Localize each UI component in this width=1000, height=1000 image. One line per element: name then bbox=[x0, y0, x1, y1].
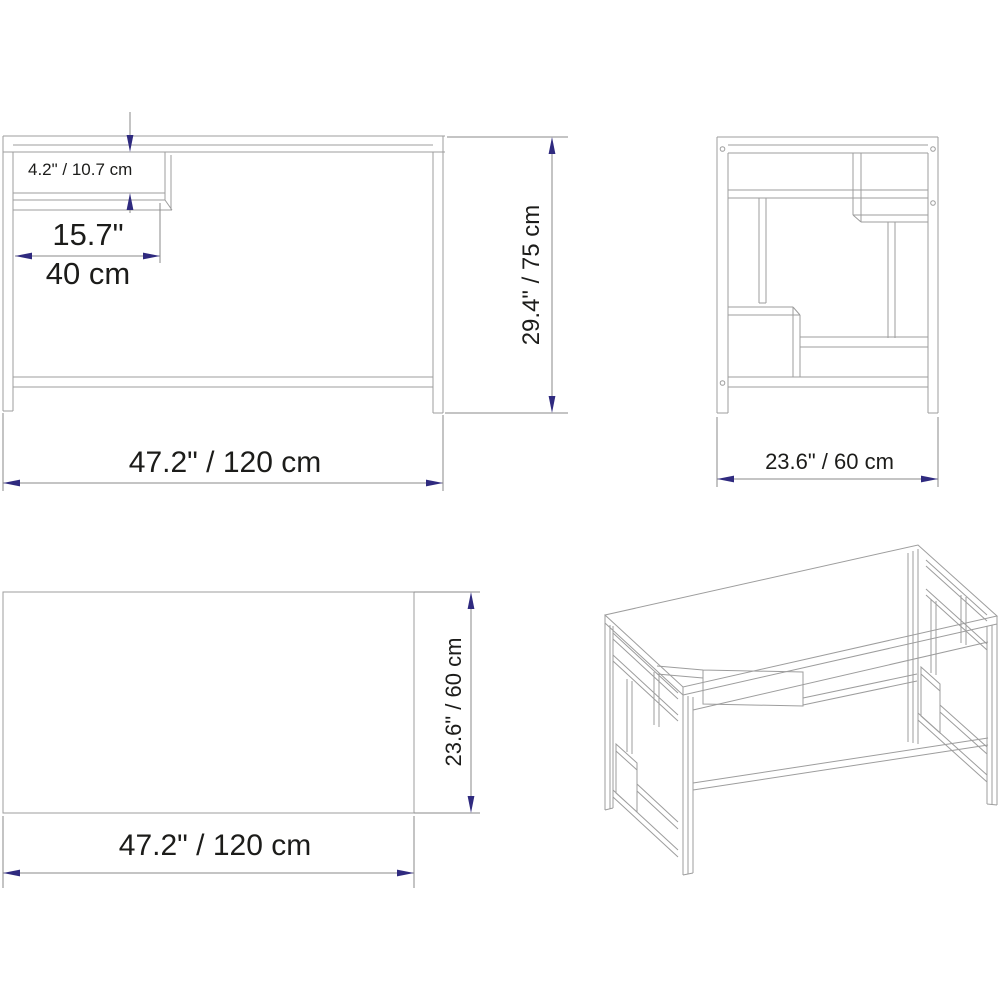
screw-hole-icon bbox=[720, 147, 725, 152]
front-shelf-width-inch-label: 15.7" bbox=[18, 217, 158, 253]
front-right-leg bbox=[433, 136, 443, 413]
side-right-leg bbox=[928, 137, 938, 413]
perspective-view bbox=[605, 545, 997, 875]
side-lower-bar bbox=[888, 222, 895, 338]
perspective-back-rail bbox=[803, 674, 917, 705]
arrow-right-icon bbox=[921, 476, 938, 483]
perspective-front-left-leg bbox=[683, 695, 693, 875]
perspective-back-left-leg bbox=[605, 623, 613, 810]
arrow-right-icon bbox=[426, 480, 443, 487]
screw-hole-icon bbox=[720, 381, 725, 386]
arrow-left-icon bbox=[3, 480, 20, 487]
arrow-down-icon bbox=[549, 396, 556, 413]
top-view-outline bbox=[3, 592, 414, 813]
side-mid-rail bbox=[800, 337, 928, 347]
front-shelf-width-cm-label: 40 cm bbox=[18, 256, 158, 292]
front-tabletop bbox=[3, 136, 445, 152]
side-bottom-rail bbox=[728, 377, 928, 387]
arrow-up-icon bbox=[468, 592, 475, 609]
side-view bbox=[717, 137, 938, 487]
perspective-front-right-leg bbox=[987, 624, 997, 805]
top-width-label: 47.2" / 120 cm bbox=[60, 829, 370, 864]
side-upper-bar bbox=[853, 153, 928, 222]
arrow-right-icon bbox=[397, 870, 414, 877]
side-depth-label: 23.6" / 60 cm bbox=[752, 449, 907, 474]
perspective-shelf bbox=[657, 666, 803, 706]
arrow-left-icon bbox=[717, 476, 734, 483]
front-bottom-rail bbox=[13, 377, 433, 387]
screw-hole-icon bbox=[931, 201, 936, 206]
front-shelf-height-label: 4.2" / 10.7 cm bbox=[28, 160, 132, 180]
side-mid-bar bbox=[759, 198, 766, 303]
side-lower-box bbox=[728, 307, 800, 377]
arrow-left-icon bbox=[3, 870, 20, 877]
perspective-back-right-leg bbox=[908, 549, 918, 744]
arrow-down-icon bbox=[127, 135, 134, 152]
perspective-long-stretcher bbox=[693, 738, 988, 790]
front-height-dim-line bbox=[445, 137, 568, 413]
arrow-up-icon bbox=[127, 193, 134, 210]
side-top-rail bbox=[717, 137, 938, 153]
perspective-front-apron bbox=[693, 642, 988, 710]
arrow-down-icon bbox=[468, 796, 475, 813]
desk-dimension-drawing: 4.2" / 10.7 cm 15.7" 40 cm 47.2" / 120 c… bbox=[0, 0, 1000, 1000]
side-shelf-rail bbox=[728, 190, 928, 198]
top-depth-label: 23.6" / 60 cm bbox=[441, 612, 467, 792]
perspective-right-frame bbox=[918, 560, 987, 782]
perspective-tabletop bbox=[605, 545, 997, 695]
front-left-leg bbox=[3, 136, 13, 411]
front-width-label: 47.2" / 120 cm bbox=[75, 446, 375, 481]
front-height-label: 29.4" / 75 cm bbox=[518, 185, 544, 365]
screw-hole-icon bbox=[931, 147, 936, 152]
side-left-leg bbox=[717, 137, 728, 413]
arrow-up-icon bbox=[549, 137, 556, 154]
